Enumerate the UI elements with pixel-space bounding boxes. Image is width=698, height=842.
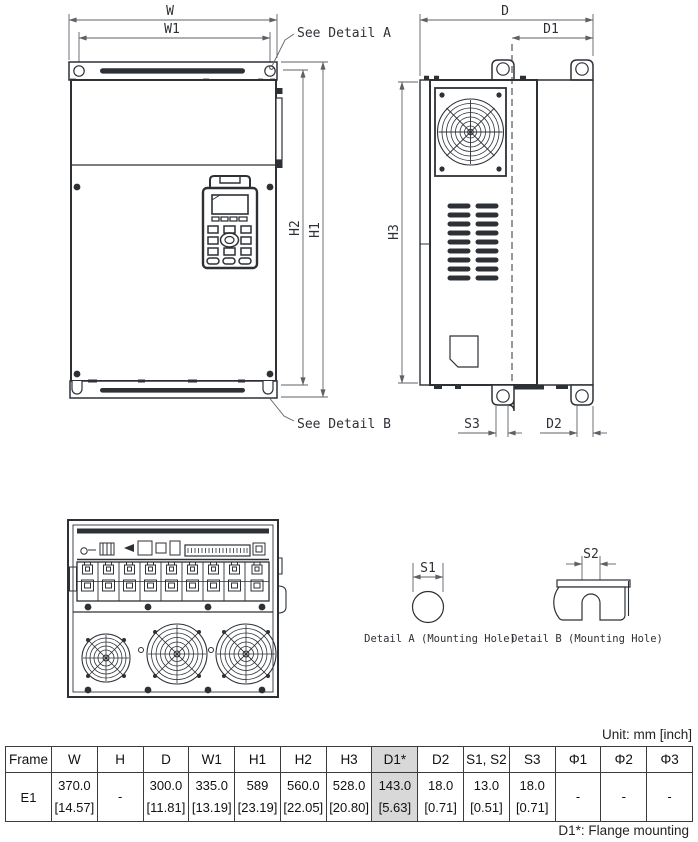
col-header-h: H	[97, 747, 143, 773]
detail-a: S1 Detail A (Mounting Hole)	[364, 561, 516, 645]
col-header-phi3: Φ3	[647, 747, 693, 773]
dim-d2: D2	[540, 406, 607, 437]
cell-frame: E1	[6, 773, 52, 822]
cooling-fan-icon	[147, 624, 207, 684]
detail-b: S2 Detail B (Mounting Hole)	[511, 547, 663, 645]
cooling-fan-icon	[216, 624, 276, 684]
dim-label-s3: S3	[464, 417, 480, 432]
dim-h2: H2	[281, 70, 308, 385]
cell-d: 300.0[11.81]	[143, 773, 189, 822]
dim-label-s2: S2	[583, 547, 599, 562]
table-header-row: Frame W H D W1 H1 H2 H3 D1* D2 S1, S2 S3…	[6, 747, 693, 773]
cell-h2: 560.0[22.05]	[280, 773, 326, 822]
dim-label-s1: S1	[420, 561, 436, 576]
callout-detail-b: See Detail B	[270, 398, 392, 432]
detail-a-caption: Detail A (Mounting Hole)	[364, 633, 516, 645]
side-protrusion	[278, 558, 286, 613]
cell-d2: 18.0[0.71]	[418, 773, 464, 822]
mounting-slot	[100, 388, 245, 393]
mounting-hole-detail-a	[413, 592, 444, 623]
col-header-phi2: Φ2	[601, 747, 647, 773]
callout-label-detail-b: See Detail B	[297, 417, 391, 432]
col-header-frame: Frame	[6, 747, 52, 773]
col-header-w1: W1	[189, 747, 235, 773]
col-header-w: W	[52, 747, 98, 773]
cell-w1: 335.0[13.19]	[189, 773, 235, 822]
cell-phi1: -	[555, 773, 601, 822]
manual-page: { "drawing": { "labels": { "w": "W", "w1…	[0, 0, 698, 842]
keyhole-notch-right	[263, 381, 273, 394]
col-header-s3: S3	[509, 747, 555, 773]
dim-d1: D1	[512, 22, 593, 38]
unit-note: Unit: mm [inch]	[602, 727, 692, 742]
top-mounting-plate	[69, 62, 277, 82]
col-header-s1s2: S1, S2	[464, 747, 510, 773]
cooling-fan-icon	[435, 88, 506, 176]
dim-label-d1: D1	[543, 22, 559, 37]
cell-s1s2: 13.0[0.51]	[464, 773, 510, 822]
table-row-e1: E1 370.0[14.57] - 300.0[11.81] 335.0[13.…	[6, 773, 693, 822]
flange-tab	[492, 385, 514, 411]
dim-label-h1: H1	[308, 222, 323, 238]
cell-d1: 143.0[5.63]	[372, 773, 418, 822]
bottom-mounting-plate	[70, 380, 277, 399]
mounting-slot	[100, 68, 245, 73]
cell-h3: 528.0[20.80]	[326, 773, 372, 822]
cell-h1: 589[23.19]	[235, 773, 281, 822]
callout-detail-a: See Detail A	[270, 26, 391, 69]
cell-s3: 18.0[0.71]	[509, 773, 555, 822]
cell-h: -	[97, 773, 143, 822]
cell-phi2: -	[601, 773, 647, 822]
front-view: W W1	[69, 4, 391, 432]
dim-label-h3: H3	[387, 224, 402, 240]
screw-icon	[267, 371, 274, 378]
bottom-view	[68, 520, 286, 697]
col-header-h2: H2	[280, 747, 326, 773]
cell-w: 370.0[14.57]	[52, 773, 98, 822]
flange-mounting-footnote: D1*: Flange mounting	[558, 823, 689, 838]
dim-label-w: W	[166, 4, 174, 19]
screw-icon	[267, 184, 274, 191]
col-header-d1: D1*	[372, 747, 418, 773]
keypad	[203, 176, 257, 268]
detail-b-caption: Detail B (Mounting Hole)	[511, 633, 663, 645]
screw-icon	[74, 371, 81, 378]
dim-s3: S3	[458, 406, 522, 437]
dim-h3: H3	[387, 82, 418, 383]
dim-label-h2: H2	[288, 220, 303, 236]
keyhole-notch-left	[72, 381, 82, 394]
cooling-fan-icon	[82, 634, 130, 682]
col-header-h3: H3	[326, 747, 372, 773]
dim-label-d2: D2	[546, 417, 562, 432]
col-header-d: D	[143, 747, 189, 773]
mounting-bracket-detail-b	[554, 580, 630, 620]
callout-label-detail-a: See Detail A	[297, 26, 391, 41]
screw-icon	[74, 184, 81, 191]
dim-label-w1: W1	[164, 22, 180, 37]
cell-phi3: -	[647, 773, 693, 822]
dimension-drawing: W W1	[0, 0, 698, 715]
col-header-d2: D2	[418, 747, 464, 773]
side-view: D D1	[387, 4, 607, 437]
dim-label-d: D	[501, 4, 509, 19]
col-header-h1: H1	[235, 747, 281, 773]
col-header-phi1: Φ1	[555, 747, 601, 773]
dim-w1: W1	[79, 22, 270, 64]
dimension-table: Frame W H D W1 H1 H2 H3 D1* D2 S1, S2 S3…	[5, 746, 693, 822]
